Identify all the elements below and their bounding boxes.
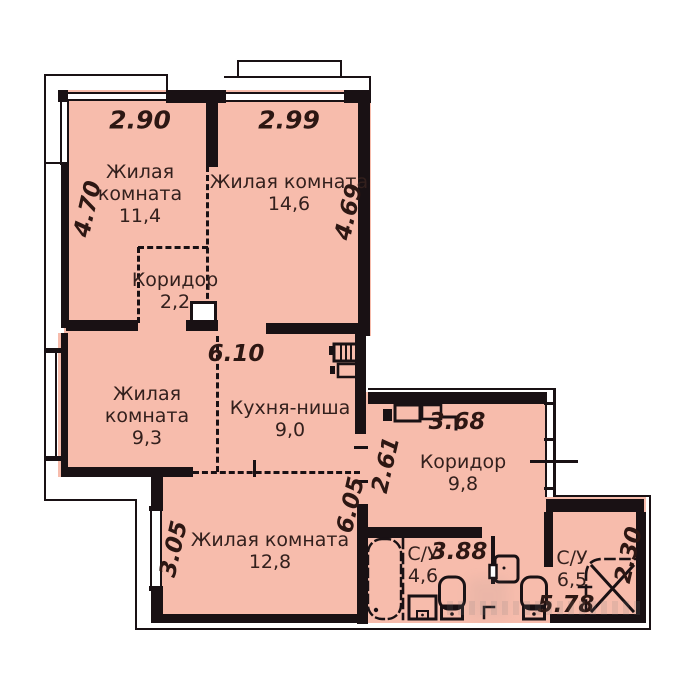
wall-segment bbox=[544, 487, 556, 490]
outline-line bbox=[368, 388, 556, 390]
window bbox=[64, 92, 167, 101]
wall-segment bbox=[44, 348, 62, 353]
wall-segment bbox=[206, 101, 218, 167]
room-name: комната bbox=[105, 405, 189, 427]
room-area: 6,5 bbox=[556, 569, 587, 591]
room-name: Жилая комната bbox=[191, 529, 349, 551]
room-area: 9,0 bbox=[230, 419, 351, 441]
wall-segment bbox=[355, 334, 366, 434]
watermark bbox=[447, 601, 643, 615]
dashed-partition bbox=[193, 471, 360, 474]
outline-line bbox=[649, 497, 651, 630]
room-name: Жилая bbox=[105, 383, 189, 405]
window bbox=[44, 351, 57, 459]
outline-line bbox=[44, 499, 137, 501]
room-area: 2,2 bbox=[132, 291, 218, 313]
window bbox=[224, 92, 345, 102]
floor-plan: Жилаякомната11,4Жилая комната14,6Коридор… bbox=[0, 0, 700, 700]
room-area: 9,8 bbox=[420, 473, 506, 495]
wall-segment bbox=[544, 438, 556, 441]
wall-segment bbox=[149, 586, 163, 591]
wall-segment bbox=[66, 320, 138, 331]
wall-segment bbox=[530, 460, 578, 463]
wall-segment bbox=[491, 536, 495, 584]
outline-line bbox=[44, 458, 46, 501]
dimension-label: 6.10 bbox=[208, 341, 265, 367]
room-label-kitchen: Кухня-ниша9,0 bbox=[230, 397, 351, 441]
outline-line bbox=[553, 390, 556, 497]
room-area: 4,6 bbox=[407, 565, 438, 587]
dimension-label: 2.99 bbox=[258, 106, 320, 135]
room-label-hall-1: Коридор2,2 bbox=[132, 269, 218, 313]
dimension-label: 3.88 bbox=[431, 539, 488, 565]
room-label-bath-2: С/У6,5 bbox=[556, 547, 587, 591]
room-area: 12,8 bbox=[191, 551, 349, 573]
outline-line bbox=[44, 162, 46, 352]
room-name: комната bbox=[98, 183, 182, 205]
wall-segment bbox=[354, 446, 368, 449]
wall-segment bbox=[368, 392, 546, 404]
outline-line bbox=[135, 499, 137, 630]
dimension-label: 2.90 bbox=[109, 106, 171, 135]
window bbox=[60, 99, 69, 165]
wall-segment bbox=[151, 588, 163, 623]
outline-line bbox=[340, 60, 342, 77]
room-label-living-3: Жилаякомната9,3 bbox=[105, 383, 189, 449]
wall-segment bbox=[362, 527, 482, 538]
wall-segment bbox=[58, 90, 68, 102]
dimension-label: 3.68 bbox=[429, 409, 486, 435]
room-name: С/У bbox=[556, 547, 587, 569]
wall-segment bbox=[61, 162, 69, 328]
outline-line bbox=[44, 162, 62, 164]
outline-line bbox=[545, 392, 547, 497]
outline-line bbox=[237, 60, 342, 62]
outline-line bbox=[44, 74, 46, 164]
wall-segment bbox=[149, 506, 163, 511]
room-name: Кухня-ниша bbox=[230, 397, 351, 419]
dashed-partition bbox=[138, 246, 208, 249]
room-label-living-4: Жилая комната12,8 bbox=[191, 529, 349, 573]
wall-segment bbox=[544, 402, 556, 405]
wall-segment bbox=[546, 499, 644, 512]
room-label-living-1: Жилаякомната11,4 bbox=[98, 161, 182, 227]
outline-line bbox=[224, 76, 371, 78]
outline-line bbox=[555, 495, 651, 497]
wall-segment bbox=[66, 467, 193, 477]
room-area: 9,3 bbox=[105, 427, 189, 449]
wall-segment bbox=[160, 614, 368, 623]
wall-segment bbox=[253, 460, 256, 477]
room-label-hall-2: Коридор9,8 bbox=[420, 451, 506, 495]
room-name: Жилая bbox=[98, 161, 182, 183]
room-area: 11,4 bbox=[98, 205, 182, 227]
room-name: Коридор bbox=[132, 269, 218, 291]
wall-segment bbox=[266, 323, 361, 334]
outline-line bbox=[44, 74, 168, 76]
wall-segment bbox=[544, 512, 553, 567]
wall-segment bbox=[61, 333, 68, 477]
wall-segment bbox=[44, 456, 62, 461]
outline-line bbox=[135, 628, 651, 630]
room-name: Коридор bbox=[420, 451, 506, 473]
outline-line bbox=[237, 60, 239, 77]
